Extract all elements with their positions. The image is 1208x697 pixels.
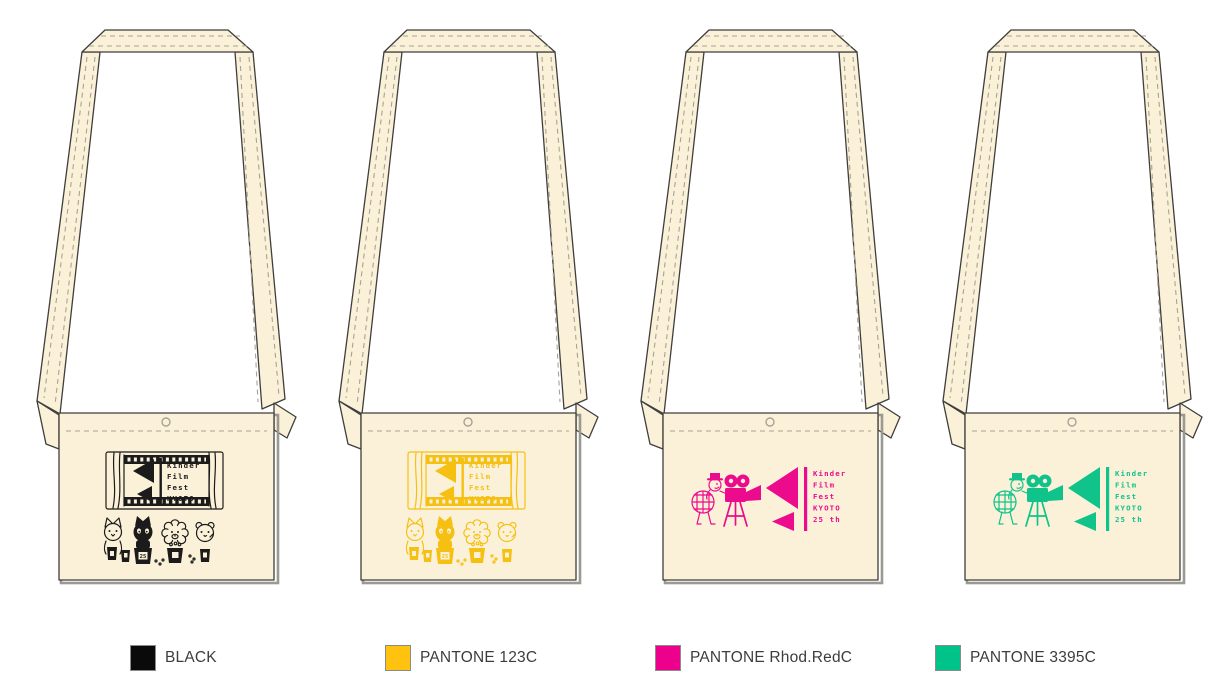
bag-illustration: Kinder Film Fest KYOTO [0,0,302,610]
bucket-label: 25 [442,554,449,560]
color-label: PANTONE Rhod.RedC [690,649,852,667]
strap-top-band [82,30,253,52]
logo-line-3: Fest [813,492,835,501]
bag-illustration: Kinder Film Fest KYOTO 25 th [604,0,906,610]
hat [1012,473,1022,479]
color-label: PANTONE 3395C [970,649,1096,667]
bucket-label: 25 [140,554,147,560]
color-chip [130,645,156,671]
hat [710,473,720,479]
color-swatch-black: BLACK [130,645,217,671]
logo-line-4: KYOTO [167,494,195,503]
color-swatch-pantone-3395c: PANTONE 3395C [935,645,1096,671]
snap-button [162,418,170,426]
shoulder-strap [943,30,1202,449]
logo-line-2: Film [469,472,491,481]
logo-line-5: 25 th [1115,515,1143,524]
bag-mockup-black: Kinder Film Fest KYOTO [0,0,302,610]
color-chip [385,645,411,671]
color-label: PANTONE 123C [420,649,537,667]
logo-line-4: KYOTO [469,494,497,503]
color-chip [935,645,961,671]
color-label: BLACK [165,649,217,667]
logo-line-1: Kinder [813,469,846,478]
snap-button [464,418,472,426]
bags-row: Kinder Film Fest KYOTO [0,0,1208,610]
logo-line-1: Kinder [1115,469,1148,478]
bag-illustration: Kinder Film Fest KYOTO 25 th [906,0,1208,610]
logo-line-4: KYOTO [1115,504,1143,513]
logo-line-5: 25 th [813,515,841,524]
logo-line-3: Fest [1115,492,1137,501]
logo-line-1: Kinder [469,461,502,470]
mockup-sheet: Kinder Film Fest KYOTO [0,0,1208,610]
snap-button [766,418,774,426]
shoulder-strap [641,30,900,449]
color-chip [655,645,681,671]
logo-line-4: KYOTO [813,504,841,513]
strap-top-band [686,30,857,52]
logo-line-2: Film [167,472,189,481]
color-swatch-pantone-rhod-red-c: PANTONE Rhod.RedC [655,645,852,671]
shoulder-strap [339,30,598,449]
strap-top-band [988,30,1159,52]
logo-line-1: Kinder [167,461,200,470]
bag-mockup-pantone-123c: Kinder Film Fest KYOTO [302,0,604,610]
strap-top-band [384,30,555,52]
logo-line-3: Fest [167,483,189,492]
color-swatch-pantone-123c: PANTONE 123C [385,645,537,671]
snap-button [1068,418,1076,426]
bag-mockup-pantone-3395c: Kinder Film Fest KYOTO 25 th [906,0,1208,610]
logo-line-2: Film [1115,481,1137,490]
logo-line-2: Film [813,481,835,490]
logo-line-3: Fest [469,483,491,492]
bag-illustration: Kinder Film Fest KYOTO [302,0,604,610]
bag-mockup-pantone-rhod-red-c: Kinder Film Fest KYOTO 25 th [604,0,906,610]
color-legend: BLACK PANTONE 123C PANTONE Rhod.RedC PAN… [0,645,1208,679]
shoulder-strap [37,30,296,449]
